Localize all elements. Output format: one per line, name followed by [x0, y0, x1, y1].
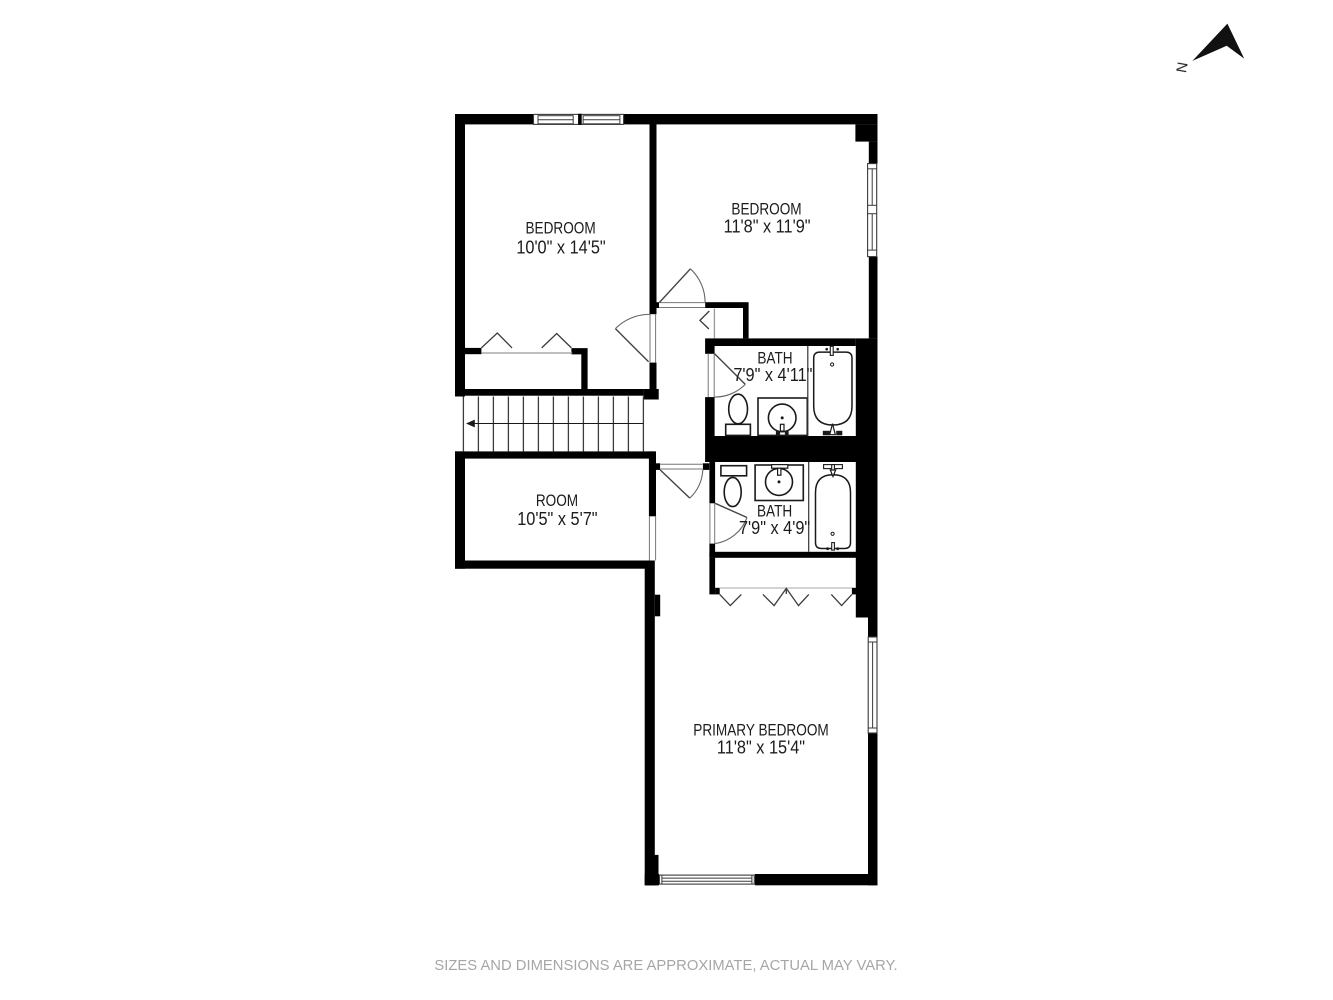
svg-text:7'9" x 4'9": 7'9" x 4'9" — [739, 517, 810, 538]
svg-text:10'5" x 5'7": 10'5" x 5'7" — [517, 508, 597, 529]
svg-text:SIZES AND DIMENSIONS ARE APPRO: SIZES AND DIMENSIONS ARE APPROXIMATE, AC… — [434, 958, 897, 974]
svg-text:BEDROOM: BEDROOM — [525, 219, 595, 237]
svg-text:7'9" x 4'11": 7'9" x 4'11" — [733, 364, 812, 385]
svg-text:11'8" x 15'4": 11'8" x 15'4" — [717, 737, 805, 758]
svg-text:11'8" x 11'9": 11'8" x 11'9" — [724, 216, 811, 237]
svg-text:10'0" x 14'5": 10'0" x 14'5" — [516, 236, 605, 257]
